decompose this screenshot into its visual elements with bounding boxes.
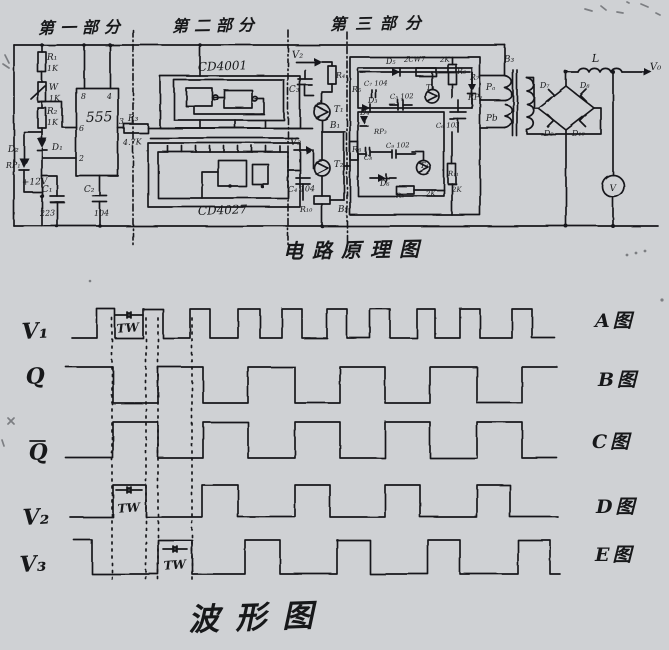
tw-label: TW — [116, 320, 141, 336]
circuit-label: 4.7K — [122, 137, 143, 147]
circuit-label: D₅ — [385, 57, 397, 66]
transformer-and-rectifier — [505, 68, 652, 226]
circuit-label: B₁ — [329, 121, 341, 131]
scan-artifacts — [2, 2, 664, 446]
waveform-trace-V2 — [70, 485, 558, 517]
circuit-label: 2K — [451, 186, 463, 194]
waveform-label-Qbar: Q — [28, 439, 49, 466]
waveform-trace-V1 — [72, 309, 555, 338]
circuit-label: R₃ — [127, 114, 139, 124]
figure-label-V2: D图 — [595, 496, 637, 518]
circuit-label: Pb — [485, 114, 498, 124]
circuit-label: RP₁ — [5, 160, 21, 170]
circuit-label: C₈ — [364, 154, 373, 162]
circuit-label: 4 — [106, 92, 112, 101]
waveform-trace-V3 — [74, 540, 560, 574]
circuit-label: CD4001 — [198, 58, 248, 74]
circuit-caption: 电路原理图 — [283, 233, 428, 265]
circuit-label: CD4027 — [198, 202, 248, 218]
circuit-label: 6 — [79, 124, 84, 133]
circuit-label: 1K — [47, 64, 59, 73]
circuit-label: C₇ 104 — [364, 79, 388, 88]
scanned-page: R₁1KW1KR₂1KD₂D₁RP₁+12VC₁223C₂10455584623… — [0, 0, 669, 650]
waveform-caption: 波形图 — [187, 590, 329, 640]
circuit-label: C₄ 104 — [288, 184, 315, 194]
zener-rp2 — [468, 84, 476, 92]
circuit-label: V₂ — [292, 50, 304, 61]
waveform-label-V2: V₂ — [22, 504, 50, 531]
schematic-and-waveform-canvas: R₁1KW1KR₂1KD₂D₁RP₁+12VC₁223C₂10455584623… — [0, 0, 669, 650]
circuit-label: 555 — [86, 109, 113, 126]
circuit-label: 223 — [39, 208, 56, 218]
transformer-core — [513, 70, 517, 136]
figure-label-V1: A图 — [593, 310, 635, 332]
circuit-label: R₁₁ — [447, 170, 459, 178]
circuit-label: R₈ — [351, 145, 362, 154]
signal-arrow-v3 — [306, 146, 313, 154]
circuit-label: C₁ — [42, 185, 53, 195]
circuit-label: L — [591, 52, 600, 65]
circuit-label: D₆ — [379, 179, 391, 188]
circuit-label: 104 — [94, 208, 110, 218]
circuit-label: T₁ — [334, 105, 344, 115]
circuit-label: 2K — [439, 56, 451, 64]
circuit-label: W — [49, 83, 59, 93]
bridge-rectifier — [538, 86, 594, 130]
circuit-label: C₅ 102 — [390, 92, 415, 101]
waveform-label-V3: V₃ — [19, 551, 47, 578]
figure-label-V3: E图 — [594, 544, 634, 566]
tw-label: TW — [163, 557, 188, 573]
circuit-label: R₉ — [395, 192, 405, 200]
resistor-r3 — [124, 124, 148, 133]
signal-arrow-v2 — [314, 58, 322, 66]
circuit-label: D₂ — [7, 145, 20, 155]
circuit-label: R₁₀ — [299, 205, 314, 214]
circuit-label: 1K — [49, 94, 61, 103]
circuit-label: R₂ — [46, 107, 58, 117]
resistor-r6 — [448, 64, 456, 84]
waveform-label-Q: Q — [25, 363, 46, 390]
circuit-label: RP₃ — [373, 128, 387, 136]
circuit-label: 2 — [78, 154, 84, 163]
circuit-label: 3 — [119, 117, 124, 126]
circuit-label: D₉ — [543, 129, 555, 138]
circuit-label: 2K — [425, 190, 437, 198]
circuit-label: Pₐ — [485, 83, 496, 93]
section3-title: 第三部分 — [330, 9, 430, 35]
circuit-label: R₆ — [456, 67, 467, 76]
circuit-label: B₂ — [337, 205, 349, 215]
circuit-label: RP₂ — [467, 92, 483, 102]
circuit-label: D₁₀ — [571, 129, 586, 139]
resistor-r4 — [328, 66, 336, 84]
diode-d4 — [360, 116, 368, 124]
waveform-traces — [66, 309, 560, 582]
circuit-label: D₇ — [539, 81, 551, 90]
circuit-label: D₈ — [579, 81, 591, 90]
circuit-label: V₃ — [290, 137, 302, 148]
nor-gate-2 — [224, 90, 252, 108]
inductor-l — [578, 68, 622, 72]
circuit-label: T₄ — [420, 161, 429, 170]
waveform-trace-Qbar — [66, 422, 557, 458]
transformer-primary-pb — [505, 104, 512, 128]
circuit-schematic — [14, 30, 658, 250]
circuit-label: 8 — [81, 92, 86, 101]
waveform-trace-Q — [66, 367, 557, 403]
circuit-label: B₃ — [503, 55, 515, 65]
circuit-label: 2CW7 — [403, 55, 426, 64]
resistor-r2 — [38, 108, 46, 128]
circuit-label: R₇ — [469, 73, 480, 82]
circuit-label: D₁ — [51, 143, 63, 153]
driver-column — [294, 58, 350, 226]
circuit-label: C₆ 103 — [436, 121, 461, 130]
circuit-label: C₉ 102 — [386, 141, 411, 150]
circuit-label: D₃ — [367, 96, 378, 105]
circuit-label: R₄ — [335, 71, 346, 80]
circuit-label: T₃ — [426, 83, 435, 92]
circuit-label: R₁ — [46, 53, 58, 63]
figure-label-Qbar: C图 — [592, 431, 632, 453]
resistor-r1 — [38, 52, 46, 72]
nor-gate-1 — [186, 88, 212, 106]
circuit-label: D₄ — [359, 108, 370, 117]
diode-d5 — [392, 68, 400, 76]
circuit-label: V — [610, 184, 618, 194]
tw-label: TW — [117, 500, 142, 516]
circuit-label: C₂ — [84, 185, 95, 195]
circuit-label: R₅ — [351, 85, 362, 94]
circuit-label: 1K — [47, 118, 59, 127]
resistor-r10 — [314, 196, 330, 204]
diode-d1 — [37, 138, 47, 148]
circuit-label: V₀ — [650, 62, 662, 73]
circuit-label: C₃ — [289, 85, 300, 95]
section1-555-oscillator — [19, 45, 168, 226]
figure-label-Q: B图 — [597, 369, 639, 391]
section1-title: 第一部分 — [38, 13, 126, 39]
waveform-label-V1: V₁ — [21, 318, 49, 345]
circuit-label: T₂ — [334, 160, 344, 170]
transformer-primary-pa — [505, 76, 512, 100]
section2-title: 第二部分 — [172, 11, 260, 37]
capacitor-c6 — [450, 112, 466, 119]
transformer-secondary — [527, 78, 534, 130]
